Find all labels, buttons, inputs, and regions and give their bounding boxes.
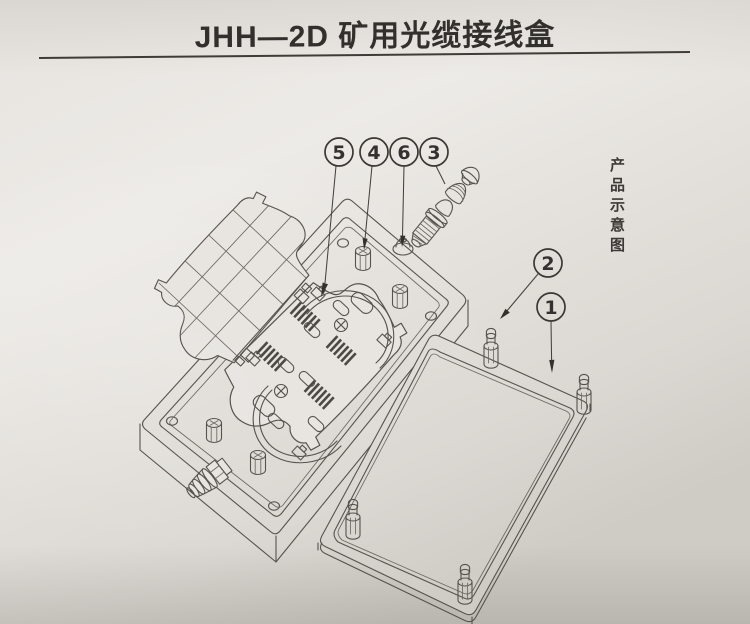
svg-text:2: 2 xyxy=(541,253,554,275)
svg-text:1: 1 xyxy=(544,297,557,319)
side-caption: 产品示意图 xyxy=(606,157,627,257)
page-title: JHH—2D 矿用光缆接线盒 xyxy=(0,8,750,57)
svg-text:3: 3 xyxy=(427,142,440,164)
exploded-diagram: 5 4 6 3 2 xyxy=(0,0,750,624)
photo-of-printed-diagram: JHH—2D 矿用光缆接线盒 产品示意图 xyxy=(0,0,750,624)
svg-text:5: 5 xyxy=(332,142,345,164)
svg-text:4: 4 xyxy=(367,142,380,164)
svg-text:6: 6 xyxy=(397,142,410,164)
